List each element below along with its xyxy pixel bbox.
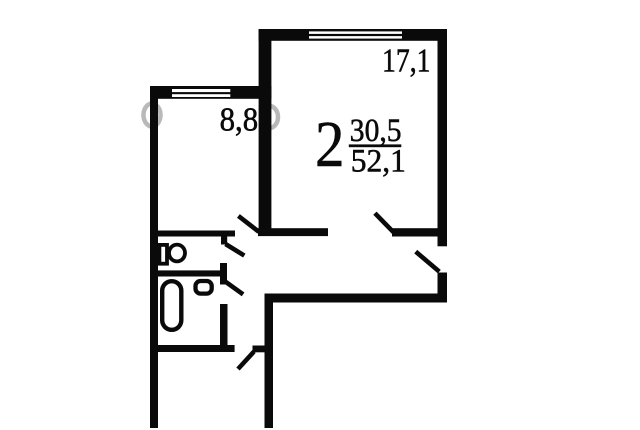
svg-text:8,8: 8,8 <box>220 101 259 138</box>
svg-text:52,1: 52,1 <box>351 143 406 179</box>
svg-text:2: 2 <box>315 108 345 181</box>
svg-text:17,1: 17,1 <box>382 42 431 79</box>
